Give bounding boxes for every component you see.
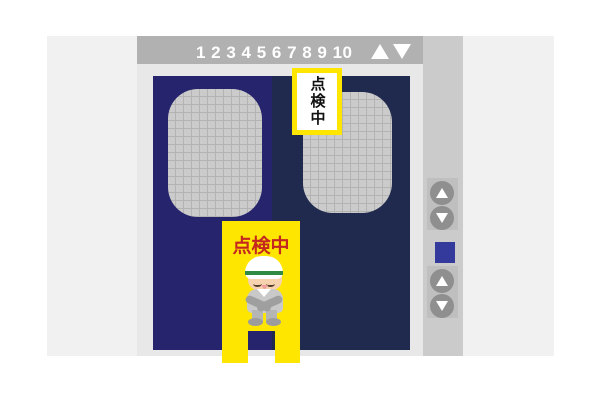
floor-numbers: 1 2 3 4 5 6 7 8 9 10 <box>196 43 346 63</box>
maintenance-stand-leg <box>275 331 300 363</box>
worker-closed-eye-left <box>253 281 262 287</box>
worker-helmet-stripe <box>245 271 283 275</box>
door-inspection-sign: 点検中 <box>292 68 342 135</box>
down-triangle-icon <box>436 213 448 223</box>
maintenance-worker-figure <box>243 254 283 326</box>
call-button-down-upper[interactable] <box>430 206 454 230</box>
worker-closed-eye-right <box>266 281 275 287</box>
floor-position-indicator <box>435 242 455 263</box>
worker-shoe-right <box>266 318 281 326</box>
worker-helmet <box>245 256 283 279</box>
down-triangle-icon <box>436 301 448 311</box>
worker-shoe-left <box>248 318 263 326</box>
indicator-down-arrow-icon <box>393 44 411 59</box>
call-button-up-lower[interactable] <box>430 269 454 293</box>
maintenance-stand-leg <box>222 331 248 363</box>
call-button-up-upper[interactable] <box>430 181 454 205</box>
call-button-down-lower[interactable] <box>430 294 454 318</box>
door-inspection-sign-text: 点検中 <box>307 76 328 127</box>
elevator-inspection-illustration: 1 2 3 4 5 6 7 8 9 10 点検中 点検中 <box>0 0 600 400</box>
indicator-up-arrow-icon <box>371 44 389 59</box>
up-triangle-icon <box>436 188 448 198</box>
left-door-window <box>168 89 262 217</box>
up-triangle-icon <box>436 276 448 286</box>
